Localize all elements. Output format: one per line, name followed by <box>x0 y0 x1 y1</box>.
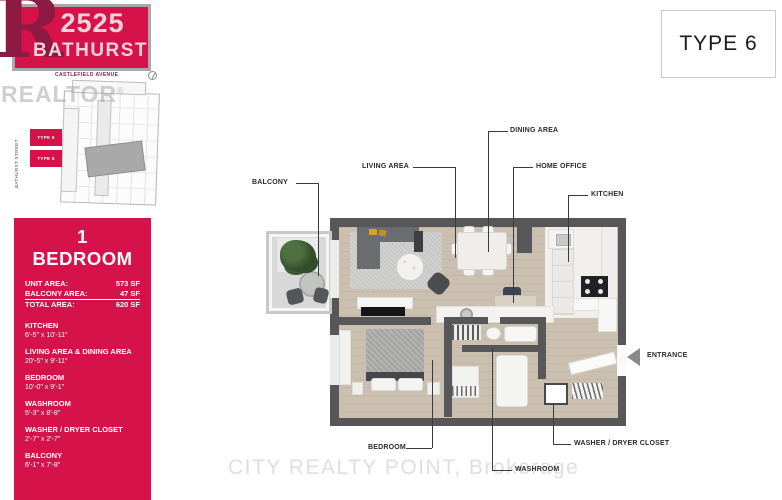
room-kitchen: KITCHEN 6'-5" x 10'-11" <box>25 321 140 340</box>
street-label-castlefield: CASTLEFIELD AVENUE <box>55 72 118 78</box>
leader-line-home-office <box>513 167 533 168</box>
coffee-table <box>396 253 424 281</box>
interior-wall <box>452 317 488 324</box>
leader-line-washer-dryer <box>553 444 571 445</box>
label-bedroom: BEDROOM <box>368 444 406 451</box>
label-washer-dryer-closet: WASHER / DRYER CLOSET <box>574 440 669 447</box>
kitchen-cabinets <box>552 249 574 315</box>
room-balcony: BALCONY 6'-1" x 7'-8" <box>25 451 140 470</box>
interior-wall <box>444 317 452 417</box>
label-kitchen: KITCHEN <box>591 191 624 198</box>
tv <box>361 307 405 316</box>
leader-line-living <box>413 167 455 168</box>
street-label-bathurst: BATHURST STREET <box>14 128 19 188</box>
unit-area-label: UNIT AREA: <box>25 279 68 289</box>
linen-closet <box>452 325 481 340</box>
room-bedroom: BEDROOM 10'-0" x 9'-1" <box>25 373 140 392</box>
sofa-pillow <box>379 229 387 236</box>
leader-line-living <box>455 167 456 258</box>
label-home-office: HOME OFFICE <box>536 163 587 170</box>
bathtub <box>504 326 537 342</box>
unit-type-title: 1 BEDROOM <box>25 226 140 270</box>
leader-line-kitchen <box>568 195 569 262</box>
entrance-opening <box>617 345 626 376</box>
cooktop-burner <box>585 289 590 294</box>
leader-line-bedroom <box>406 448 432 449</box>
entrance-arrow-icon <box>627 348 640 366</box>
leader-line-washroom <box>492 348 493 470</box>
balcony-area-row: BALCONY AREA: 47 SF <box>25 289 140 300</box>
total-area-value: 620 SF <box>116 300 140 310</box>
balcony-plant <box>280 240 316 272</box>
cooktop-burner <box>585 279 590 284</box>
toilet <box>486 327 501 340</box>
towel-rack <box>452 386 479 396</box>
cooktop-burner <box>598 279 603 284</box>
interior-wall <box>500 317 542 324</box>
leader-line-dining <box>488 131 508 132</box>
building-number: 2525 <box>34 8 151 39</box>
cooktop-burner <box>598 289 603 294</box>
interior-wall <box>462 345 544 352</box>
compass-icon <box>148 71 157 80</box>
leader-line-balcony <box>296 183 318 184</box>
bedroom-window <box>330 335 339 385</box>
leader-line-home-office <box>513 167 514 303</box>
site-plan-unit-marker-2: TYPE 6 <box>30 150 62 167</box>
site-plan-left-units <box>61 108 80 193</box>
leader-line-balcony <box>318 183 319 276</box>
bedroom-closet <box>339 330 351 385</box>
label-living-area: LIVING AREA <box>362 163 409 170</box>
coat-closet <box>572 383 603 399</box>
nightstand <box>352 382 363 395</box>
kitchen-bench <box>598 298 617 332</box>
unit-spec-panel: 1 BEDROOM UNIT AREA: 573 SF BALCONY AREA… <box>14 218 151 500</box>
balcony-area-label: BALCONY AREA: <box>25 289 88 299</box>
balcony-door <box>330 240 339 298</box>
dining-table <box>457 232 507 270</box>
interior-wall <box>339 317 431 325</box>
room-living-dining: LIVING AREA & DINING AREA 20'-5" x 9'-11… <box>25 347 140 366</box>
room-washer-dryer: WASHER / DRYER CLOSET 2'-7" x 2'-7" <box>25 425 140 444</box>
nightstand <box>427 382 440 395</box>
room-dimension-list: KITCHEN 6'-5" x 10'-11" LIVING AREA & DI… <box>25 321 140 470</box>
bed <box>366 329 424 376</box>
label-balcony: BALCONY <box>252 179 288 186</box>
unit-area-value: 573 SF <box>116 279 140 289</box>
realtor-watermark: REALTOR® <box>1 81 125 108</box>
leader-line-bedroom <box>432 360 433 448</box>
leader-line-washroom <box>492 470 512 471</box>
wall-stub <box>517 227 532 253</box>
site-plan-unit-marker-1: TYPE 6 <box>30 129 62 146</box>
sofa-pillow <box>369 229 377 235</box>
label-entrance: ENTRANCE <box>647 352 688 359</box>
label-dining-area: DINING AREA <box>510 127 558 134</box>
total-area-label: TOTAL AREA: <box>25 300 75 310</box>
building-name: BATHURST <box>30 40 151 62</box>
type-badge: TYPE 6 <box>661 10 776 78</box>
bed-pillow <box>398 378 423 391</box>
leader-line-washer-dryer <box>553 403 554 444</box>
shower <box>496 355 528 407</box>
leader-line-dining <box>488 131 489 252</box>
washer-dryer-unit <box>544 383 568 405</box>
bed-pillow <box>371 378 396 391</box>
room-washroom: WASHROOM 5'-3" x 8'-8" <box>25 399 140 418</box>
leader-line-kitchen <box>568 195 588 196</box>
floorplan-sheet: R 2525 BATHURST CASTLEFIELD AVENUE REALT… <box>0 0 782 500</box>
unit-area-row: UNIT AREA: 573 SF <box>25 279 140 289</box>
balcony-area-value: 47 SF <box>120 289 140 299</box>
total-area-row: TOTAL AREA: 620 SF <box>25 300 140 310</box>
label-washroom: WASHROOM <box>515 466 559 473</box>
sofa-armrest <box>414 231 423 252</box>
